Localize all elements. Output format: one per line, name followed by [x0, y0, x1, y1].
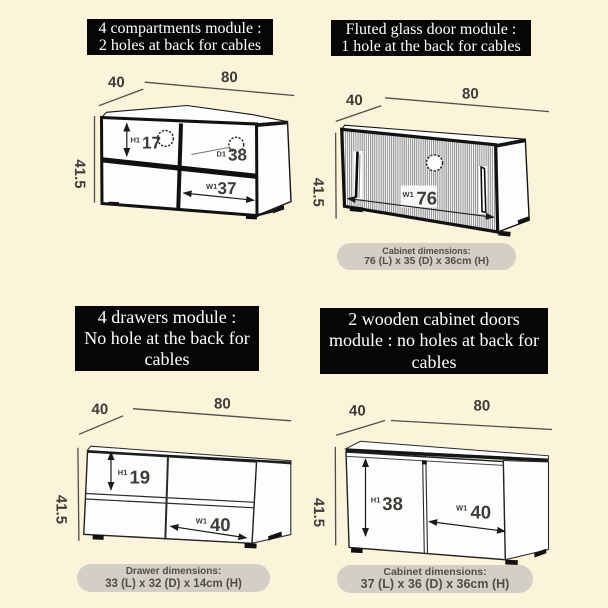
- svg-text:40: 40: [349, 403, 366, 420]
- svg-text:W1: W1: [206, 182, 217, 191]
- svg-text:40: 40: [346, 92, 363, 109]
- svg-text:W1: W1: [403, 190, 414, 199]
- svg-text:80: 80: [221, 69, 238, 86]
- svg-text:80: 80: [214, 396, 231, 413]
- svg-text:41.5: 41.5: [71, 159, 88, 188]
- svg-text:76: 76: [417, 188, 438, 209]
- svg-text:40: 40: [92, 401, 109, 418]
- svg-text:19: 19: [130, 467, 151, 488]
- svg-text:38: 38: [228, 146, 247, 165]
- svg-text:41.5: 41.5: [310, 498, 327, 527]
- svg-text:W1: W1: [196, 517, 207, 526]
- svg-text:80: 80: [474, 398, 491, 415]
- svg-text:37: 37: [218, 179, 237, 198]
- svg-text:41.5: 41.5: [310, 178, 327, 207]
- svg-text:40: 40: [108, 74, 125, 91]
- svg-text:H1: H1: [118, 468, 128, 477]
- svg-text:38: 38: [382, 493, 403, 514]
- svg-text:40: 40: [210, 514, 231, 535]
- svg-text:40: 40: [471, 502, 492, 523]
- svg-text:D1: D1: [217, 150, 227, 159]
- svg-text:80: 80: [462, 86, 479, 103]
- svg-text:H1: H1: [131, 136, 141, 145]
- svg-text:W1: W1: [456, 504, 467, 513]
- svg-text:41.5: 41.5: [53, 495, 70, 524]
- svg-text:H1: H1: [371, 496, 381, 505]
